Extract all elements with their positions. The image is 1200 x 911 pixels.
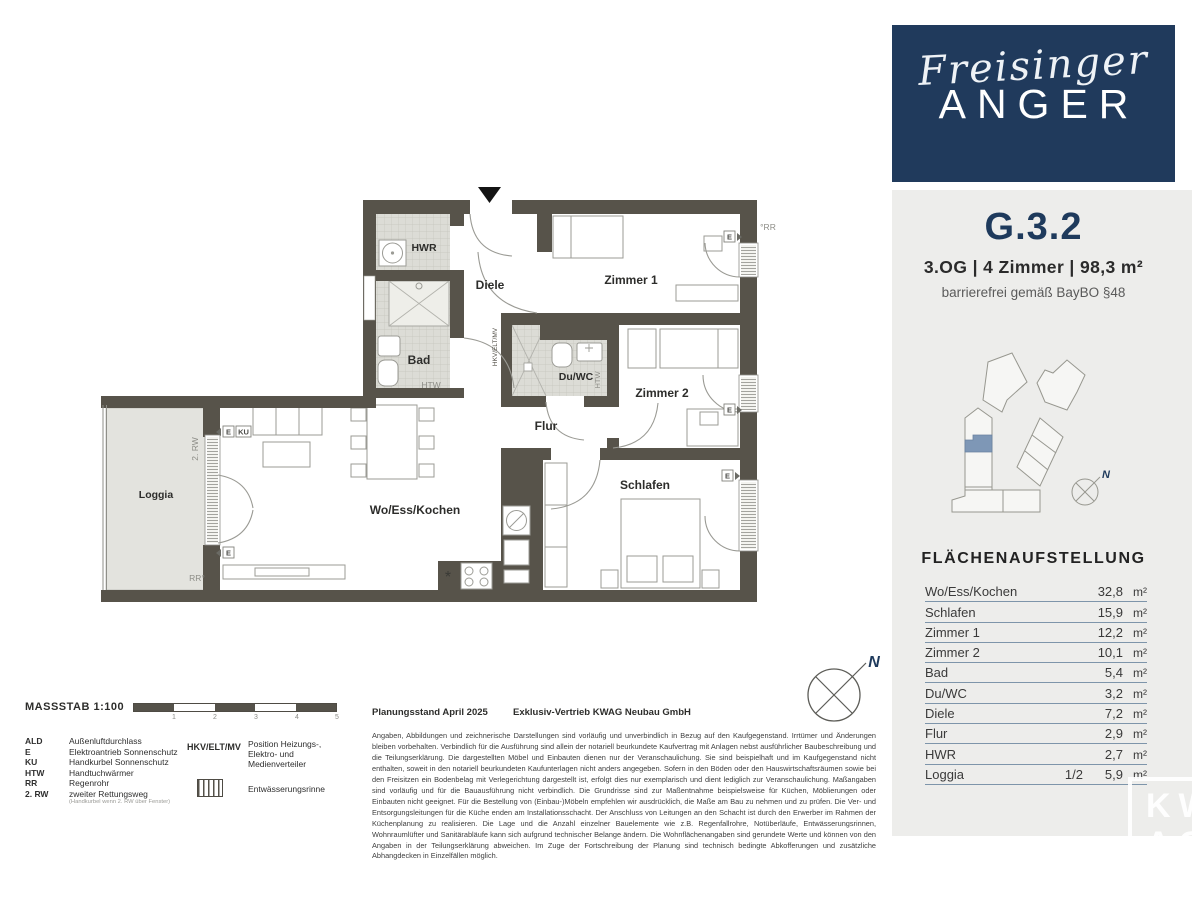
table-row: Flur2,9m² (925, 724, 1147, 744)
entrance-arrow-icon (478, 187, 501, 203)
wardrobe (628, 329, 656, 368)
dresser (676, 285, 738, 301)
bed (660, 329, 738, 368)
oven (504, 540, 529, 565)
table-row: Bad5,4m² (925, 663, 1147, 683)
sales-contact: Exklusiv-Vertrieb KWAG Neubau GmbH (513, 707, 691, 718)
table-row: Zimmer 210,1m² (925, 643, 1147, 663)
sideboard (223, 565, 345, 579)
toilet (378, 360, 398, 386)
nightstand (601, 570, 618, 588)
sink (378, 336, 400, 356)
unit-specs: 3.OG | 4 Zimmer | 98,3 m² (892, 257, 1175, 278)
project-logo: Freisinger ANGER (892, 25, 1175, 182)
label-rr-bottom: RR° (189, 573, 205, 583)
label-flur: Flur (535, 419, 558, 433)
window-swing-schlafen (705, 516, 740, 551)
label-duwc: Du/WC (559, 371, 594, 383)
table-row: Loggia1/25,9m² (925, 765, 1147, 785)
label-hwr: HWR (411, 242, 436, 254)
floorplan-page: { "branding": { "script": "Freisinger", … (0, 0, 1200, 849)
table-row: Du/WC3,2m² (925, 683, 1147, 703)
label-wohnen: Wo/Ess/Kochen (370, 503, 460, 517)
label-diele: Diele (476, 278, 505, 292)
entrance-door (470, 214, 512, 256)
legend-note: (Handkurbel wenn 2. RW über Fenster) (69, 799, 178, 806)
nightstand (702, 570, 719, 588)
scale-label: MASSSTAB 1:100 (25, 701, 124, 713)
scale-ticks: 1 2 3 4 5 (133, 714, 343, 724)
kitchen-sink-symbol: * (445, 569, 451, 586)
label-schlafen: Schlafen (620, 478, 670, 492)
north-indicator: N (808, 654, 880, 721)
wardrobe (545, 463, 567, 587)
legend-item: 2. RWzweiter Rettungsweg (25, 789, 178, 800)
planning-status: Planungsstand April 2025 (372, 707, 488, 718)
dining-table (367, 405, 417, 479)
svg-text:E: E (226, 549, 231, 558)
table-row: Wo/Ess/Kochen32,8m² (925, 582, 1147, 602)
area-table-title: FLÄCHENAUFSTELLUNG (892, 550, 1175, 568)
svg-text:E: E (727, 406, 732, 415)
label-2rw: 2. RW (190, 437, 200, 460)
loggia-door-leaf2 (218, 510, 253, 543)
door-zimmer2 (613, 403, 658, 448)
legend-item: RRRegenrohr (25, 778, 178, 789)
label-zimmer1: Zimmer 1 (604, 273, 658, 287)
drainage-channel-icon (197, 779, 223, 797)
label-htw-bad: HTW (421, 380, 440, 390)
stove (461, 563, 492, 589)
unit-accessibility-note: barrierefrei gemäß BayBO §48 (892, 285, 1175, 300)
coffee-table (263, 442, 310, 467)
svg-text:KU: KU (238, 428, 249, 437)
floor-plan: E KU E E E E HWR Diele Zimmer 1 Bad HTW … (80, 180, 890, 740)
legend-hkv-desc: Position Heizungs-, Elektro- und Medienv… (248, 739, 343, 769)
toilet (552, 343, 572, 367)
sofa (253, 407, 322, 435)
legend-item: EElektroantrieb Sonnenschutz (25, 747, 178, 758)
kwag-watermark: KW AG (1128, 777, 1200, 911)
legend-hkv-abbr: HKV/ELT/MV (187, 742, 241, 752)
svg-text:E: E (226, 428, 231, 437)
label-bad: Bad (408, 353, 431, 367)
legend-item: ALDAußenluftdurchlass (25, 736, 178, 747)
svg-text:E: E (725, 472, 730, 481)
north-letter: N (868, 654, 880, 671)
label-htw-duwc: HTW (593, 371, 602, 389)
legend-item: HTWHandtuchwärmer (25, 768, 178, 779)
legend-abbreviations: ALDAußenluftdurchlass EElektroantrieb So… (25, 736, 178, 806)
label-hkv: HKV/ELT/MV (492, 327, 499, 366)
legal-disclaimer: Angaben, Abbildungen und zeichnerische D… (372, 731, 876, 862)
table-row: Zimmer 112,2m² (925, 623, 1147, 643)
site-north-indicator: N (1072, 469, 1111, 505)
scale-bar (133, 703, 337, 712)
area-table: Wo/Ess/Kochen32,8m² Schlafen15,9m² Zimme… (925, 582, 1147, 785)
sink (577, 343, 602, 361)
svg-text:E: E (727, 233, 732, 242)
table-row: HWR2,7m² (925, 744, 1147, 764)
label-rr-top: °RR (760, 222, 776, 232)
legend-drainage-label: Entwässerungsrinne (248, 784, 325, 794)
wall-niche (364, 276, 375, 320)
site-key-plan: N (930, 345, 1150, 520)
bed (553, 216, 623, 258)
table-row: Diele7,2m² (925, 704, 1147, 724)
label-loggia: Loggia (139, 489, 174, 501)
label-zimmer2: Zimmer 2 (635, 386, 689, 400)
svg-text:N: N (1102, 469, 1111, 481)
loggia-door-leaf1 (218, 475, 253, 508)
table-row: Schlafen15,9m² (925, 602, 1147, 622)
unit-id: G.3.2 (892, 206, 1175, 249)
legend-item: KUHandkurbel Sonnenschutz (25, 757, 178, 768)
